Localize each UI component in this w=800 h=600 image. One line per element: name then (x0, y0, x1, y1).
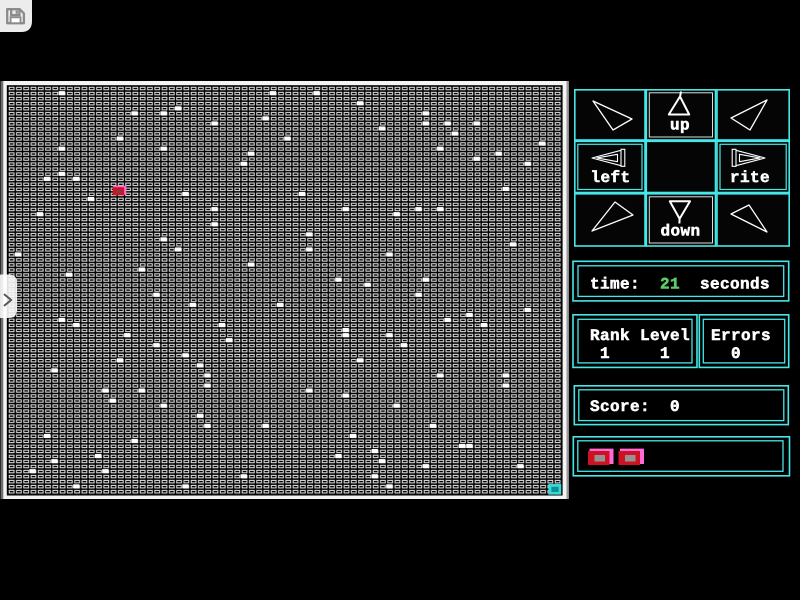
svg-text:1: 1 (660, 345, 670, 363)
svg-text:Rank Level: Rank Level (590, 327, 690, 345)
svg-text:left: left (591, 169, 631, 187)
svg-text:up: up (670, 117, 690, 135)
svg-text:21: 21 (660, 276, 680, 294)
svg-text:time:: time: (590, 276, 640, 294)
svg-text:0: 0 (670, 398, 680, 416)
svg-text:Errors: Errors (711, 327, 771, 345)
svg-text:1: 1 (600, 345, 610, 363)
svg-text:seconds: seconds (700, 276, 770, 294)
svg-text:down: down (661, 223, 701, 241)
svg-text:rite: rite (730, 169, 770, 187)
svg-text:0: 0 (731, 345, 741, 363)
svg-text:Score:: Score: (590, 398, 650, 416)
